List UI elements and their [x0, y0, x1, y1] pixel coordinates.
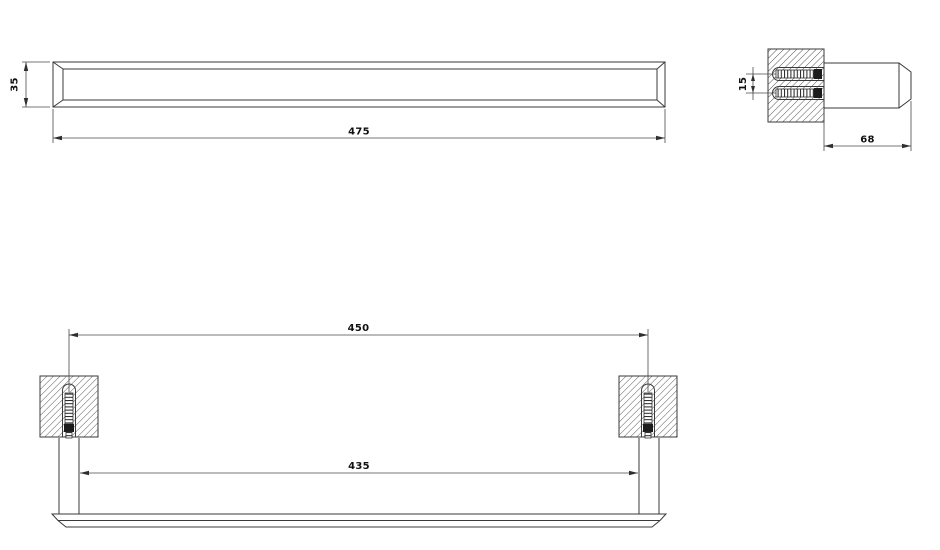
screw-tip	[66, 432, 72, 438]
plan-view: 450 435	[40, 323, 677, 527]
dimension-bar-length: 475	[53, 109, 665, 143]
screw-head	[814, 69, 822, 79]
screw-thread	[644, 393, 652, 424]
screw-thread	[776, 89, 814, 97]
front-view: 35 475	[10, 62, 666, 143]
screw-tip	[645, 432, 651, 438]
bar-inner-outline	[63, 69, 657, 100]
bar-top-outline	[52, 514, 666, 527]
dimension-screw-spacing: 15	[738, 67, 755, 100]
technical-drawing: 35 475	[0, 0, 940, 550]
wall-section	[768, 49, 824, 122]
mount-posts	[59, 438, 659, 514]
dim-height-label: 35	[10, 77, 21, 92]
dim-depth-label: 68	[860, 135, 875, 146]
side-view: 15 68	[738, 49, 911, 151]
anchor-holes	[63, 384, 655, 437]
screw-thread	[65, 393, 73, 424]
screw-head	[64, 424, 74, 432]
dim-centers-label: 450	[348, 323, 370, 334]
screw-thread	[776, 70, 814, 78]
dim-spacing-label: 15	[738, 77, 749, 92]
dimension-inner-span: 435	[80, 461, 638, 475]
drawing-canvas: 35 475	[0, 0, 940, 550]
dimension-hole-centers: 450	[69, 323, 648, 392]
dim-span-label: 435	[348, 461, 370, 472]
screw-head	[643, 424, 653, 432]
dimension-bar-height: 35	[10, 62, 51, 107]
screw-head	[814, 88, 822, 98]
mount-body	[824, 63, 911, 108]
dim-length-label: 475	[348, 127, 370, 138]
anchor-screws	[64, 393, 653, 438]
